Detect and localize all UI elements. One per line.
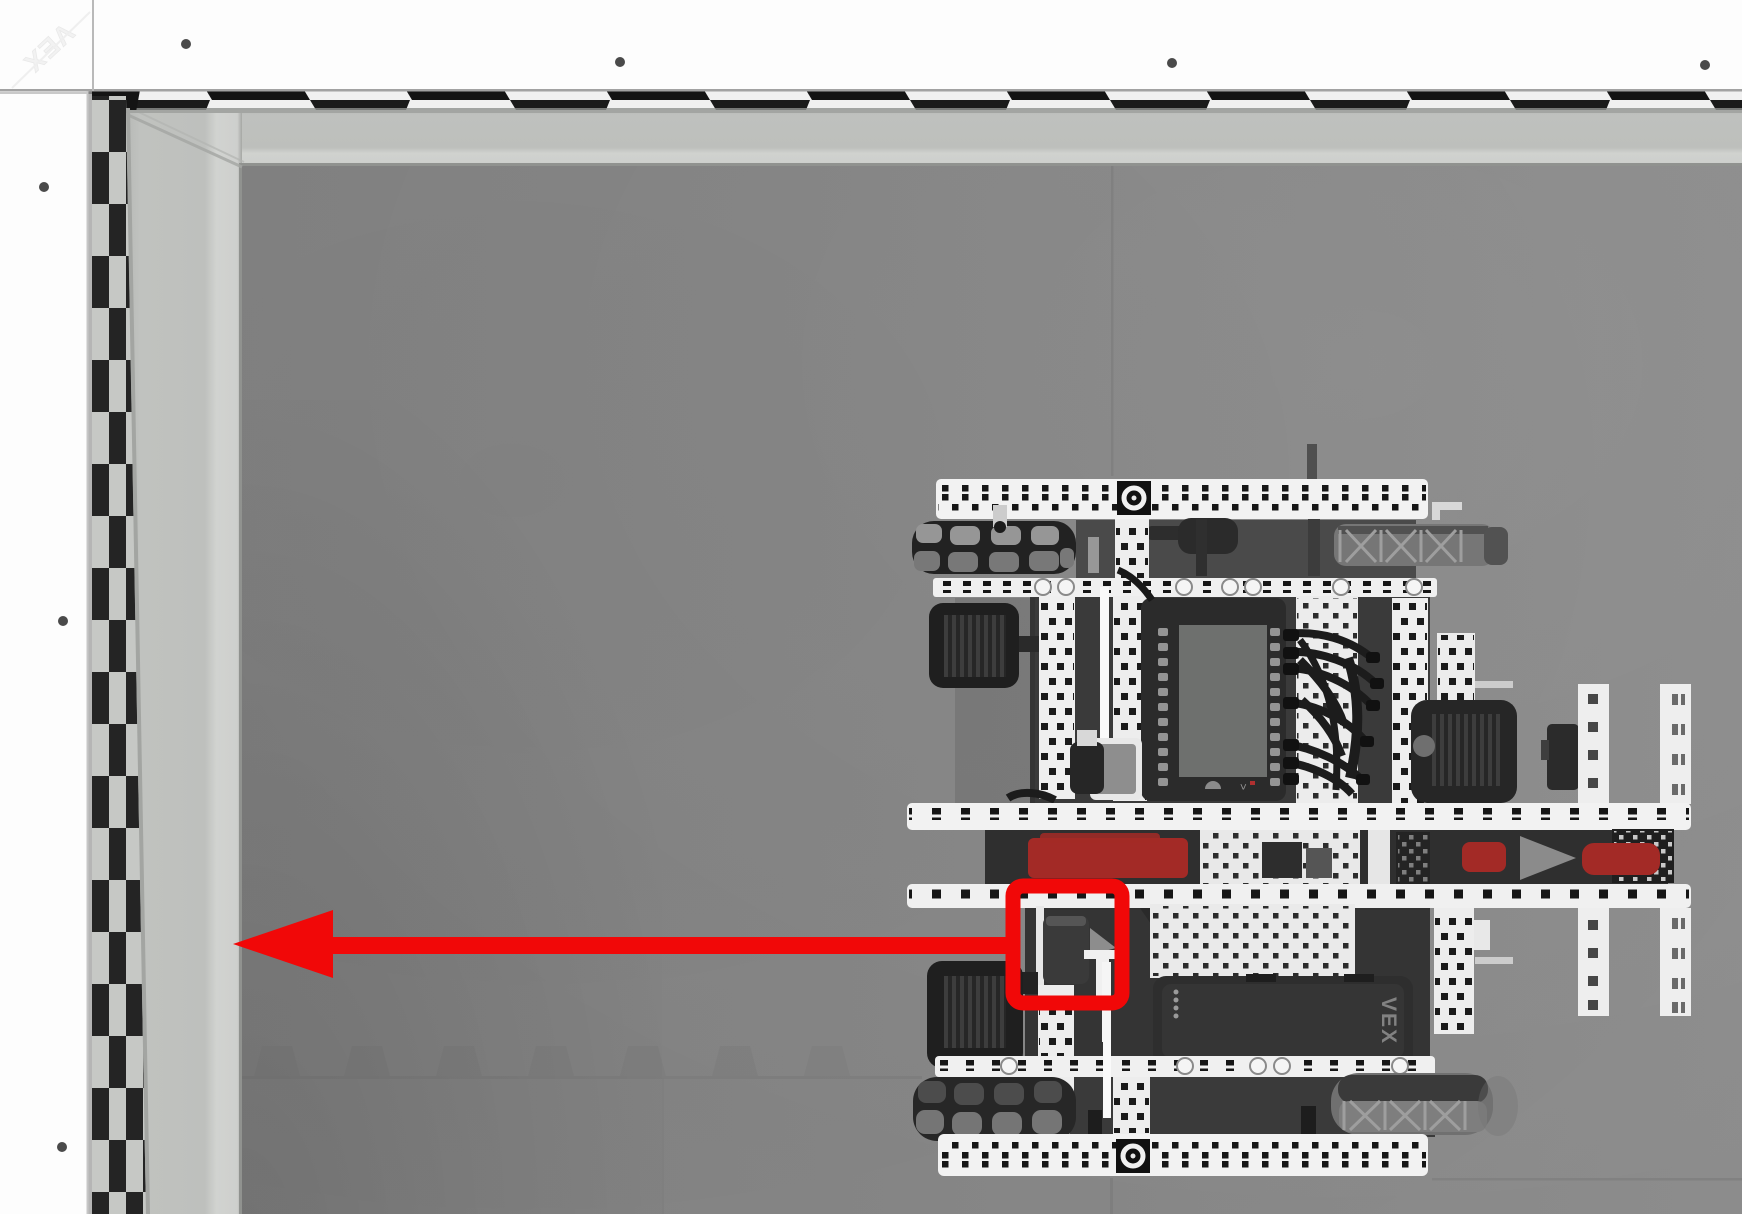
- svg-text:VEX: VEX: [1377, 997, 1400, 1045]
- svg-text:<: <: [1238, 784, 1250, 790]
